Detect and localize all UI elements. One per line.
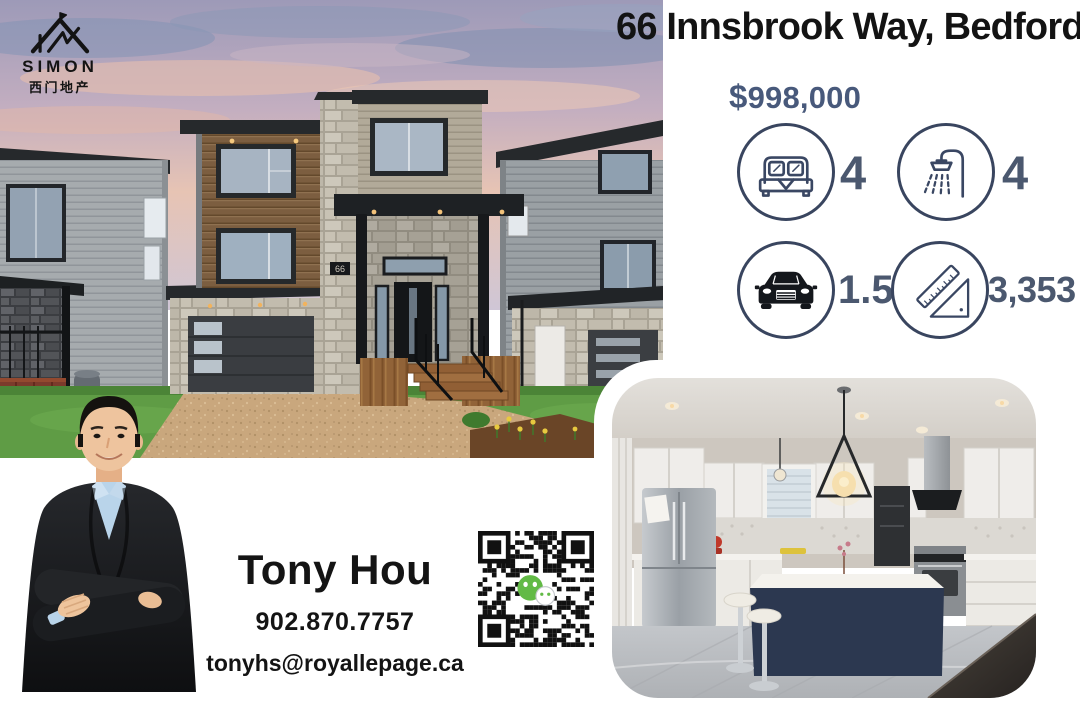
stat-value-bathrooms: 4 [1002, 123, 1028, 221]
kitchen-photo [612, 378, 1036, 698]
car-icon [748, 252, 824, 328]
listing-address: 66 Innsbrook Way, Bedford [616, 6, 1080, 49]
stat-value-bedrooms: 4 [840, 123, 866, 221]
kitchen-photo-frame [594, 360, 1054, 716]
stat-value-area: 3,353 [988, 241, 1076, 339]
bed-icon [748, 134, 824, 210]
wechat-qr [478, 531, 594, 647]
price-currency: $ [729, 78, 748, 115]
listing-price: $998,000 [729, 78, 861, 116]
stat-value-garage: 1.5 [838, 241, 894, 339]
stat-bedrooms [737, 123, 835, 221]
agent-phone: 902.870.7757 [200, 608, 470, 637]
price-amount: 998,000 [748, 80, 861, 115]
brand-name: SIMON [22, 58, 98, 76]
ruler-icon [902, 252, 978, 328]
agent-name: Tony Hou [200, 546, 470, 594]
flyer-canvas: 66 SIM [0, 0, 1080, 720]
qr-code [478, 531, 594, 647]
agent-photo [8, 390, 210, 692]
shower-icon [908, 134, 984, 210]
agent-portrait [8, 390, 210, 692]
stat-garage [737, 241, 835, 339]
brand-name-cn: 西门地产 [29, 77, 91, 96]
agent-email: tonyhs@royallepage.ca [200, 650, 470, 677]
right-neighbor-house [496, 120, 663, 398]
house-logo-icon [23, 6, 97, 58]
house-number-plaque: 66 [335, 264, 345, 274]
agent-info: Tony Hou 902.870.7757 tonyhs@royallepage… [200, 546, 470, 677]
main-house: 66 [166, 90, 524, 406]
stat-bathrooms [897, 123, 995, 221]
stat-area [891, 241, 989, 339]
left-neighbor-house [0, 148, 170, 418]
brand-logo: SIMON 西门地产 [8, 6, 112, 96]
kitchen-scene [612, 378, 1036, 698]
